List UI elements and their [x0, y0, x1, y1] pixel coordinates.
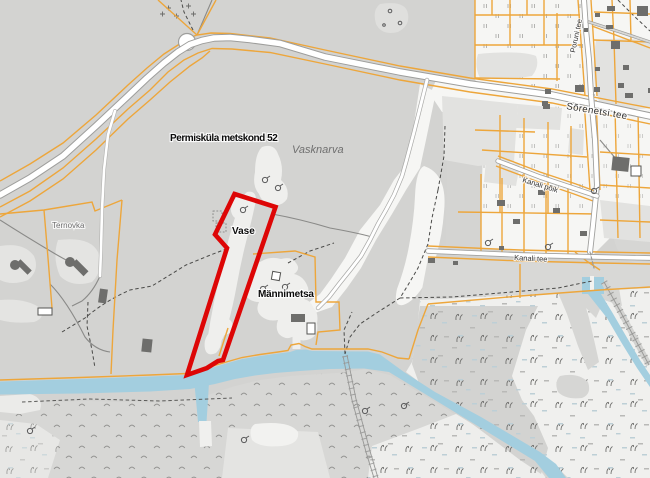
svg-text:Permisküla metskond 52: Permisküla metskond 52	[170, 133, 278, 144]
svg-text:Vasknarva: Vasknarva	[292, 144, 344, 156]
svg-text:Ternovka: Ternovka	[52, 221, 85, 230]
svg-text:Vase: Vase	[232, 226, 255, 237]
svg-text:Kanali tee: Kanali tee	[514, 253, 548, 264]
svg-text:Männimetsa: Männimetsa	[258, 289, 314, 300]
